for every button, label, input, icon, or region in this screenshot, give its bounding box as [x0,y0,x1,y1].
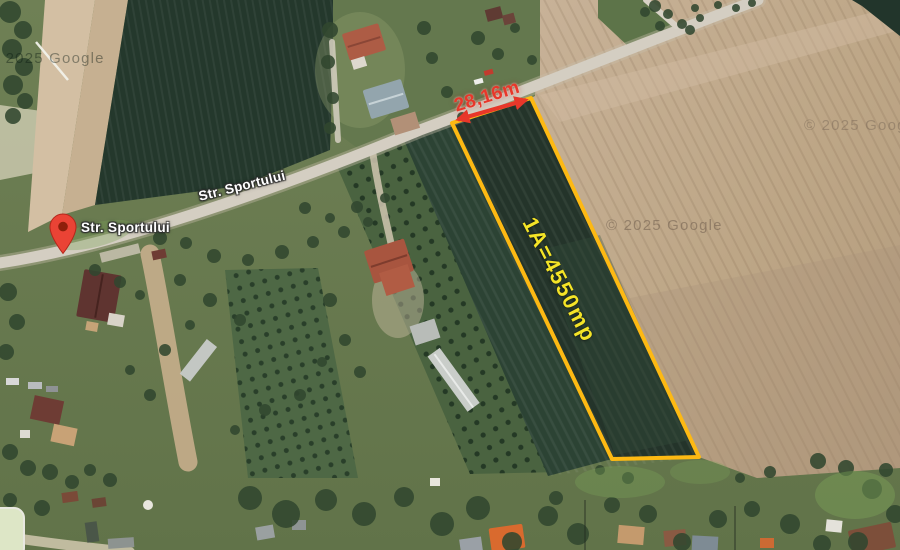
marker-label: Str. Sportului [81,221,170,236]
satellite-basemap [0,0,900,550]
google-watermark: © 2025 Google [804,117,900,134]
google-watermark: © 2025 Google [606,217,723,234]
pin-body [50,214,76,254]
pin-hole [58,222,68,232]
map-pin-icon[interactable] [49,213,77,255]
google-watermark: © 2025 Google [0,50,105,67]
map-canvas[interactable]: Str. Sportului Str. Sportului 28,16m 1A=… [0,0,900,550]
